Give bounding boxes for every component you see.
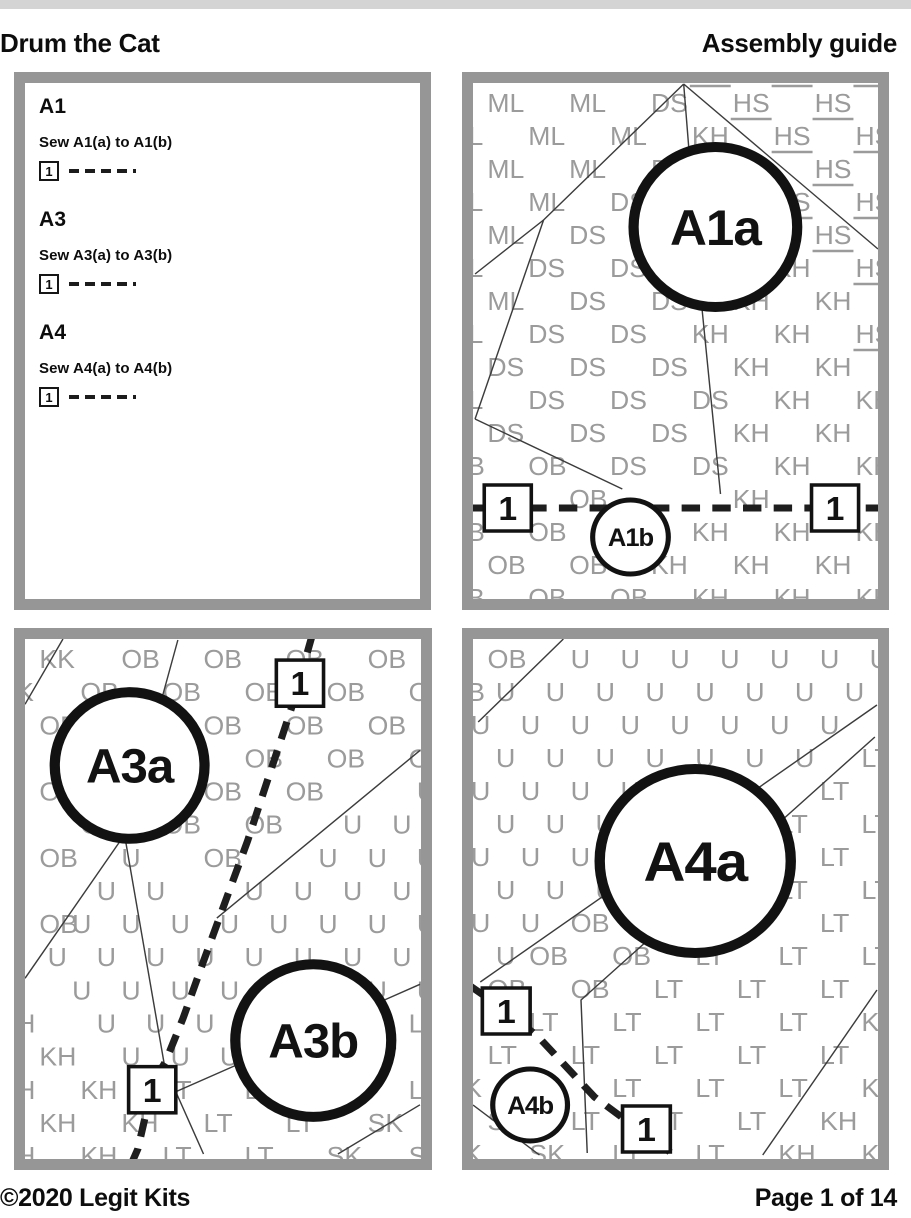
fabric-code-label: OB xyxy=(327,639,366,641)
fabric-code-label: U xyxy=(795,639,814,641)
fabric-code-label: U xyxy=(473,842,490,871)
fabric-code-label: SK xyxy=(473,1073,482,1102)
pattern-panel-A3: KKKKKKOBOBOBOBOBOBOBOBOBOBOBOBOBOBOBOBOB… xyxy=(14,628,432,1170)
fabric-code-label: HS xyxy=(774,121,811,151)
fabric-code-label: KH xyxy=(733,550,770,580)
step-instruction-text: Sew A3(a) to A3(b) xyxy=(39,247,420,264)
fabric-code-label: KH xyxy=(774,385,811,415)
fabric-code-label: ML xyxy=(569,88,606,118)
fabric-code-label: U xyxy=(417,843,421,873)
dashed-seam-icon xyxy=(69,395,136,399)
fabric-code-label: U xyxy=(171,976,190,1006)
fabric-code-label: OB xyxy=(245,810,284,840)
fabric-code-label: U xyxy=(146,876,165,906)
fabric-code-label: LT xyxy=(162,1141,191,1159)
piece-label: A4a xyxy=(643,831,749,894)
fabric-code-label: KH xyxy=(80,1141,117,1159)
fabric-code-label: LT xyxy=(654,974,684,1003)
fabric-code-label: HS xyxy=(856,253,879,283)
fabric-code-label: DS xyxy=(610,451,647,481)
fabric-code-label: DS xyxy=(569,286,606,316)
fabric-code-label: KH xyxy=(815,286,852,316)
fabric-code-label: U xyxy=(845,677,864,706)
fabric-code-label: HS xyxy=(692,83,729,85)
fabric-code-label: ML xyxy=(487,88,524,118)
fabric-code-label: U xyxy=(195,1009,214,1039)
fabric-code-label: U xyxy=(521,908,540,937)
fabric-code-label: LT xyxy=(861,809,878,838)
fabric-code-label: U xyxy=(392,876,411,906)
fabric-code-label: KH xyxy=(820,1106,858,1135)
fabric-code-label: KH xyxy=(815,418,852,448)
fabric-code-label: DS xyxy=(651,352,688,382)
fabric-code-label: U xyxy=(392,943,411,973)
fabric-code-label: KH xyxy=(861,1139,878,1159)
fabric-code-label: ML xyxy=(473,187,483,217)
fabric-code-label: KH xyxy=(692,517,729,547)
fabric-code-label: LT xyxy=(529,1007,559,1036)
page-number: Page 1 of 14 xyxy=(755,1184,897,1213)
fabric-code-label: U xyxy=(546,875,565,904)
fabric-code-label: U xyxy=(473,710,490,739)
fabric-code-label: KH xyxy=(856,385,879,415)
piece-label: A3a xyxy=(86,740,175,793)
fabric-code-label: DS xyxy=(569,352,606,382)
fabric-code-label: OB xyxy=(204,644,243,674)
fabric-code-label: HS xyxy=(856,187,879,217)
fabric-code-label: U xyxy=(97,876,116,906)
page-subtitle: Assembly guide xyxy=(702,28,897,59)
top-gray-bar xyxy=(0,0,911,9)
page-title: Drum the Cat xyxy=(0,28,160,59)
fabric-code-label: DS xyxy=(528,319,565,349)
fabric-code-label: U xyxy=(546,809,565,838)
fabric-code-label: U xyxy=(72,909,91,939)
fabric-code-label: HS xyxy=(815,88,852,118)
fabric-code-label: U xyxy=(571,710,590,739)
fabric-code-label: U xyxy=(645,677,664,706)
pattern-panel-A4: OBOBOBOBUUUUUUUUUUUUUUUUUUUUUUUUUUUUUUUU… xyxy=(462,628,889,1170)
fabric-code-label: U xyxy=(596,677,615,706)
fabric-code-label: U xyxy=(97,943,116,973)
fabric-code-label: U xyxy=(795,677,814,706)
fabric-code-label: LT xyxy=(820,776,850,805)
fabric-code-label: U xyxy=(521,710,540,739)
fabric-code-label: ML xyxy=(487,154,524,184)
fabric-code-label: ML xyxy=(528,121,565,151)
fabric-code-label: DS xyxy=(528,385,565,415)
fabric-code-label: LT xyxy=(778,1073,808,1102)
fabric-code-label: U xyxy=(245,943,264,973)
fabric-code-label: HS xyxy=(815,154,852,184)
fabric-code-label: LT xyxy=(861,941,878,970)
fabric-code-label: LT xyxy=(737,1040,767,1069)
fabric-code-label: KH xyxy=(39,1108,76,1138)
fabric-code-label: OB xyxy=(327,744,366,774)
fabric-code-label: ML xyxy=(528,83,565,85)
fabric-code-label: U xyxy=(571,842,590,871)
fabric-code-label: U xyxy=(795,743,814,772)
fabric-code-label: U xyxy=(720,644,739,673)
fabric-code-label: KK xyxy=(25,639,34,641)
fabric-code-label: OB xyxy=(368,711,407,741)
fabric-code-label: LT xyxy=(737,1106,767,1135)
fabric-code-label: LT xyxy=(820,908,850,937)
fabric-code-label: U xyxy=(121,976,140,1006)
step-title: A4 xyxy=(39,321,420,345)
pattern-drawing-A4: OBOBOBOBUUUUUUUUUUUUUUUUUUUUUUUUUUUUUUUU… xyxy=(473,639,878,1159)
fabric-code-label: ML xyxy=(610,83,647,85)
fabric-code-label: LT xyxy=(695,1073,725,1102)
fabric-code-label: U xyxy=(770,710,789,739)
dashed-seam-icon xyxy=(69,169,136,173)
fabric-code-label: OB xyxy=(327,678,366,708)
fabric-code-label: KH xyxy=(861,1073,878,1102)
fabric-code-label: U xyxy=(72,976,91,1006)
dashed-seam-icon xyxy=(69,282,136,286)
fabric-code-label: U xyxy=(496,743,515,772)
fabric-code-label: OB xyxy=(473,451,485,481)
piece-label: A1a xyxy=(670,200,763,256)
fabric-code-label: KH xyxy=(815,550,852,580)
fabric-code-label: U xyxy=(368,909,387,939)
fabric-code-label: U xyxy=(417,909,421,939)
seam-number: 1 xyxy=(291,667,310,704)
seam-legend-row: 1 xyxy=(39,274,420,294)
fabric-code-label: ML xyxy=(528,187,565,217)
fabric-code-label: OB xyxy=(528,517,566,547)
fabric-code-label: KH xyxy=(25,1075,35,1105)
fabric-code-label: OB xyxy=(204,777,243,807)
fabric-code-label: OB xyxy=(571,908,610,937)
fabric-code-label: U xyxy=(870,644,878,673)
fabric-code-label: U xyxy=(245,876,264,906)
fabric-code-label: DS xyxy=(569,220,606,250)
fabric-code-label: LT xyxy=(778,941,808,970)
instruction-step: A1Sew A1(a) to A1(b)1 xyxy=(39,95,420,181)
fabric-code-label: OB xyxy=(409,639,421,641)
fabric-code-label: LT xyxy=(409,1075,421,1105)
fabric-code-label: U xyxy=(343,810,362,840)
fabric-code-label: U xyxy=(695,677,714,706)
fabric-code-label: OB xyxy=(473,639,485,641)
piece-label: A3b xyxy=(268,1015,358,1068)
fabric-code-label: U xyxy=(620,644,639,673)
fabric-code-label: LT xyxy=(612,1007,642,1036)
seam-number-box: 1 xyxy=(39,161,59,181)
fabric-code-label: HS xyxy=(856,319,879,349)
piece-label: A4b xyxy=(507,1092,553,1119)
fabric-code-label: HS xyxy=(856,83,879,85)
fabric-code-label: U xyxy=(670,644,689,673)
fabric-code-label: KH xyxy=(856,451,879,481)
fabric-code-label: OB xyxy=(368,644,407,674)
fabric-code-label: U xyxy=(473,908,490,937)
fabric-code-label: U xyxy=(146,943,165,973)
fabric-code-label: U xyxy=(473,776,490,805)
fabric-code-label: LT xyxy=(245,1141,274,1159)
fabric-code-label: U xyxy=(546,743,565,772)
fabric-code-label: HS xyxy=(856,121,879,151)
fabric-code-label: KH xyxy=(861,1007,878,1036)
fabric-code-label: OB xyxy=(473,583,485,599)
fabric-code-label: KH xyxy=(774,319,811,349)
fabric-code-label: OB xyxy=(528,451,566,481)
fabric-code-label: OB xyxy=(286,711,325,741)
fabric-code-label: KH xyxy=(39,1042,76,1072)
fabric-code-label: LT xyxy=(695,1007,725,1036)
fabric-code-label: HS xyxy=(815,220,852,250)
fabric-code-label: LT xyxy=(695,1139,725,1159)
fabric-code-label: LT xyxy=(571,1040,601,1069)
fabric-code-label: DS xyxy=(610,385,647,415)
fabric-code-label: KH xyxy=(25,1141,35,1159)
fabric-code-label: KH xyxy=(733,352,770,382)
fabric-code-label: OB xyxy=(80,639,119,641)
fabric-code-label: U xyxy=(596,639,615,641)
seam-legend-row: 1 xyxy=(39,161,420,181)
fabric-code-label: KH xyxy=(692,583,729,599)
instruction-step: A3Sew A3(a) to A3(b)1 xyxy=(39,208,420,294)
fabric-code-label: DS xyxy=(692,451,729,481)
fabric-code-label: LT xyxy=(488,1040,518,1069)
fabric-code-label: OB xyxy=(487,550,525,580)
step-title: A3 xyxy=(39,208,420,232)
fabric-code-label: OB xyxy=(162,639,201,641)
fabric-code-label: U xyxy=(220,976,239,1006)
fabric-code-label: LT xyxy=(861,875,878,904)
fabric-code-label: U xyxy=(496,875,515,904)
fabric-code-label: ML xyxy=(473,319,483,349)
fabric-code-label: LT xyxy=(654,1040,684,1069)
fabric-code-label: U xyxy=(318,843,337,873)
fabric-code-label: KH xyxy=(774,517,811,547)
fabric-code-label: LT xyxy=(737,974,767,1003)
seam-number: 1 xyxy=(637,1113,656,1149)
fabric-code-label: HS xyxy=(774,83,811,85)
fabric-code-label: LT xyxy=(820,974,850,1003)
fabric-code-label: U xyxy=(392,810,411,840)
step-title: A1 xyxy=(39,95,420,119)
fabric-code-label: LT xyxy=(612,1073,642,1102)
fabric-code-label: U xyxy=(521,776,540,805)
fabric-code-label: U xyxy=(645,639,664,641)
fabric-code-label: KH xyxy=(80,1075,117,1105)
fabric-code-label: U xyxy=(820,710,839,739)
fabric-code-label: U xyxy=(695,639,714,641)
fabric-code-label: U xyxy=(596,743,615,772)
fabric-code-label: U xyxy=(171,909,190,939)
seam-legend-row: 1 xyxy=(39,387,420,407)
fabric-code-label: OB xyxy=(121,644,160,674)
fabric-code-label: U xyxy=(521,842,540,871)
fabric-code-label: U xyxy=(571,776,590,805)
fabric-code-label: U xyxy=(48,943,67,973)
fabric-code-label: DS xyxy=(651,418,688,448)
pattern-drawing-A3: KKKKKKOBOBOBOBOBOBOBOBOBOBOBOBOBOBOBOBOB… xyxy=(25,639,421,1159)
fabric-code-label: DS xyxy=(651,88,688,118)
fabric-code-label: KH xyxy=(815,352,852,382)
fabric-code-label: DS xyxy=(569,418,606,448)
fabric-code-label: U xyxy=(121,843,140,873)
fabric-code-label: U xyxy=(745,639,764,641)
seam-number-box: 1 xyxy=(39,387,59,407)
fabric-code-label: OB xyxy=(529,941,568,970)
piece-label: A1b xyxy=(608,524,654,552)
fabric-code-label: U xyxy=(845,639,864,641)
fabric-code-label: HS xyxy=(733,88,770,118)
fabric-code-label: SK xyxy=(409,1141,421,1159)
fabric-code-label: U xyxy=(670,710,689,739)
fabric-code-label: U xyxy=(269,909,288,939)
copyright-text: ©2020 Legit Kits xyxy=(0,1184,190,1213)
fabric-code-label: KH xyxy=(25,1009,35,1039)
fabric-code-label: U xyxy=(417,777,421,807)
step-instruction-text: Sew A4(a) to A4(b) xyxy=(39,360,420,377)
pattern-drawing-A1: MLMLMLMLMLMLMLMLMLMLMLMLMLMLMLMLMLDSDSDS… xyxy=(473,83,878,599)
fabric-code-label: OB xyxy=(488,644,527,673)
fabric-code-label: U xyxy=(645,743,664,772)
fabric-code-label: U xyxy=(496,809,515,838)
fabric-code-label: OB xyxy=(409,678,421,708)
fabric-code-label: LT xyxy=(861,743,878,772)
seam-number-box: 1 xyxy=(39,274,59,294)
fabric-code-label: KH xyxy=(733,418,770,448)
fabric-code-label: ML xyxy=(473,121,483,151)
fabric-code-label: KH xyxy=(774,451,811,481)
fabric-code-label: OB xyxy=(204,711,243,741)
fabric-code-label: DS xyxy=(528,253,565,283)
fabric-code-label: SK xyxy=(473,1139,482,1159)
pattern-panel-A1: MLMLMLMLMLMLMLMLMLMLMLMLMLMLMLMLMLDSDSDS… xyxy=(462,72,889,610)
fabric-code-label: U xyxy=(745,677,764,706)
fabric-code-label: U xyxy=(97,1009,116,1039)
seam-number: 1 xyxy=(826,491,845,528)
fabric-code-label: U xyxy=(368,843,387,873)
fabric-code-label: U xyxy=(820,644,839,673)
seam-number: 1 xyxy=(497,995,516,1031)
fabric-code-label: ML xyxy=(487,220,524,250)
fabric-code-label: U xyxy=(546,677,565,706)
fabric-code-label: ML xyxy=(569,154,606,184)
fabric-code-label: KH xyxy=(856,583,879,599)
fabric-code-label: U xyxy=(745,743,764,772)
fabric-code-label: U xyxy=(318,909,337,939)
fabric-code-label: U xyxy=(294,876,313,906)
assembly-guide-page: Drum the Cat Assembly guide A1Sew A1(a) … xyxy=(0,0,911,1218)
instruction-panel: A1Sew A1(a) to A1(b)1A3Sew A3(a) to A3(b… xyxy=(14,72,431,610)
fabric-code-label: U xyxy=(620,710,639,739)
fabric-code-label: LT xyxy=(820,842,850,871)
instruction-step: A4Sew A4(a) to A4(b)1 xyxy=(39,321,420,407)
fabric-code-label: OB xyxy=(610,583,648,599)
fabric-code-label: ML xyxy=(473,83,483,85)
fabric-code-label: U xyxy=(720,710,739,739)
fabric-code-label: U xyxy=(571,644,590,673)
fabric-code-label: U xyxy=(417,976,421,1006)
fabric-code-label: U xyxy=(496,941,515,970)
fabric-code-label: KH xyxy=(774,583,811,599)
step-instruction-text: Sew A1(a) to A1(b) xyxy=(39,134,420,151)
fabric-code-label: DS xyxy=(610,319,647,349)
seam-number: 1 xyxy=(143,1073,162,1110)
fabric-code-label: OB xyxy=(39,843,78,873)
fabric-code-label: LT xyxy=(778,1007,808,1036)
fabric-code-label: OB xyxy=(286,777,325,807)
fabric-code-label: OB xyxy=(245,639,284,641)
fabric-code-label: LT xyxy=(409,1009,421,1039)
fabric-code-label: KH xyxy=(692,319,729,349)
seam-number: 1 xyxy=(498,491,517,528)
fabric-code-label: U xyxy=(770,644,789,673)
fabric-code-label: OB xyxy=(528,583,566,599)
fabric-code-label: KH xyxy=(778,1139,816,1159)
fabric-code-label: U xyxy=(343,876,362,906)
fabric-code-label: LT xyxy=(204,1108,233,1138)
fabric-code-label: OB xyxy=(473,677,485,706)
